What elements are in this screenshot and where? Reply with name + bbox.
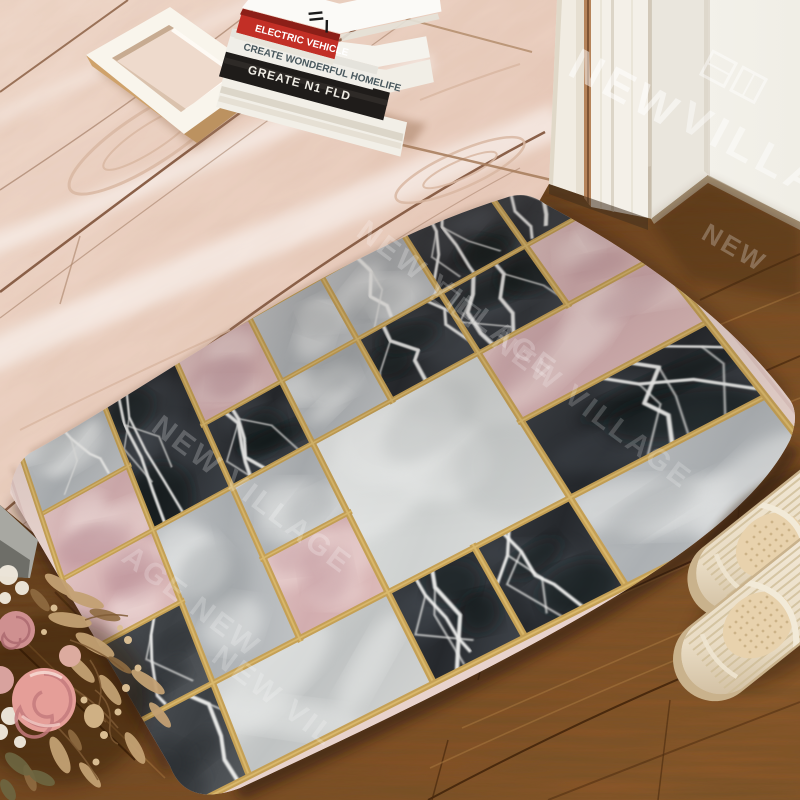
svg-text:NEW VILLAGE: NEW VILLAGE (146, 409, 359, 581)
svg-text:VILLAGE: VILLAGE (671, 92, 800, 245)
svg-text:AGE NEW: AGE NEW (116, 539, 267, 664)
svg-text:NEW VILLAGE: NEW VILLAGE (486, 324, 699, 496)
svg-text:NEW: NEW (561, 40, 691, 140)
svg-text:NEW: NEW (697, 217, 772, 278)
svg-text:NEW VIL: NEW VIL (206, 639, 342, 753)
